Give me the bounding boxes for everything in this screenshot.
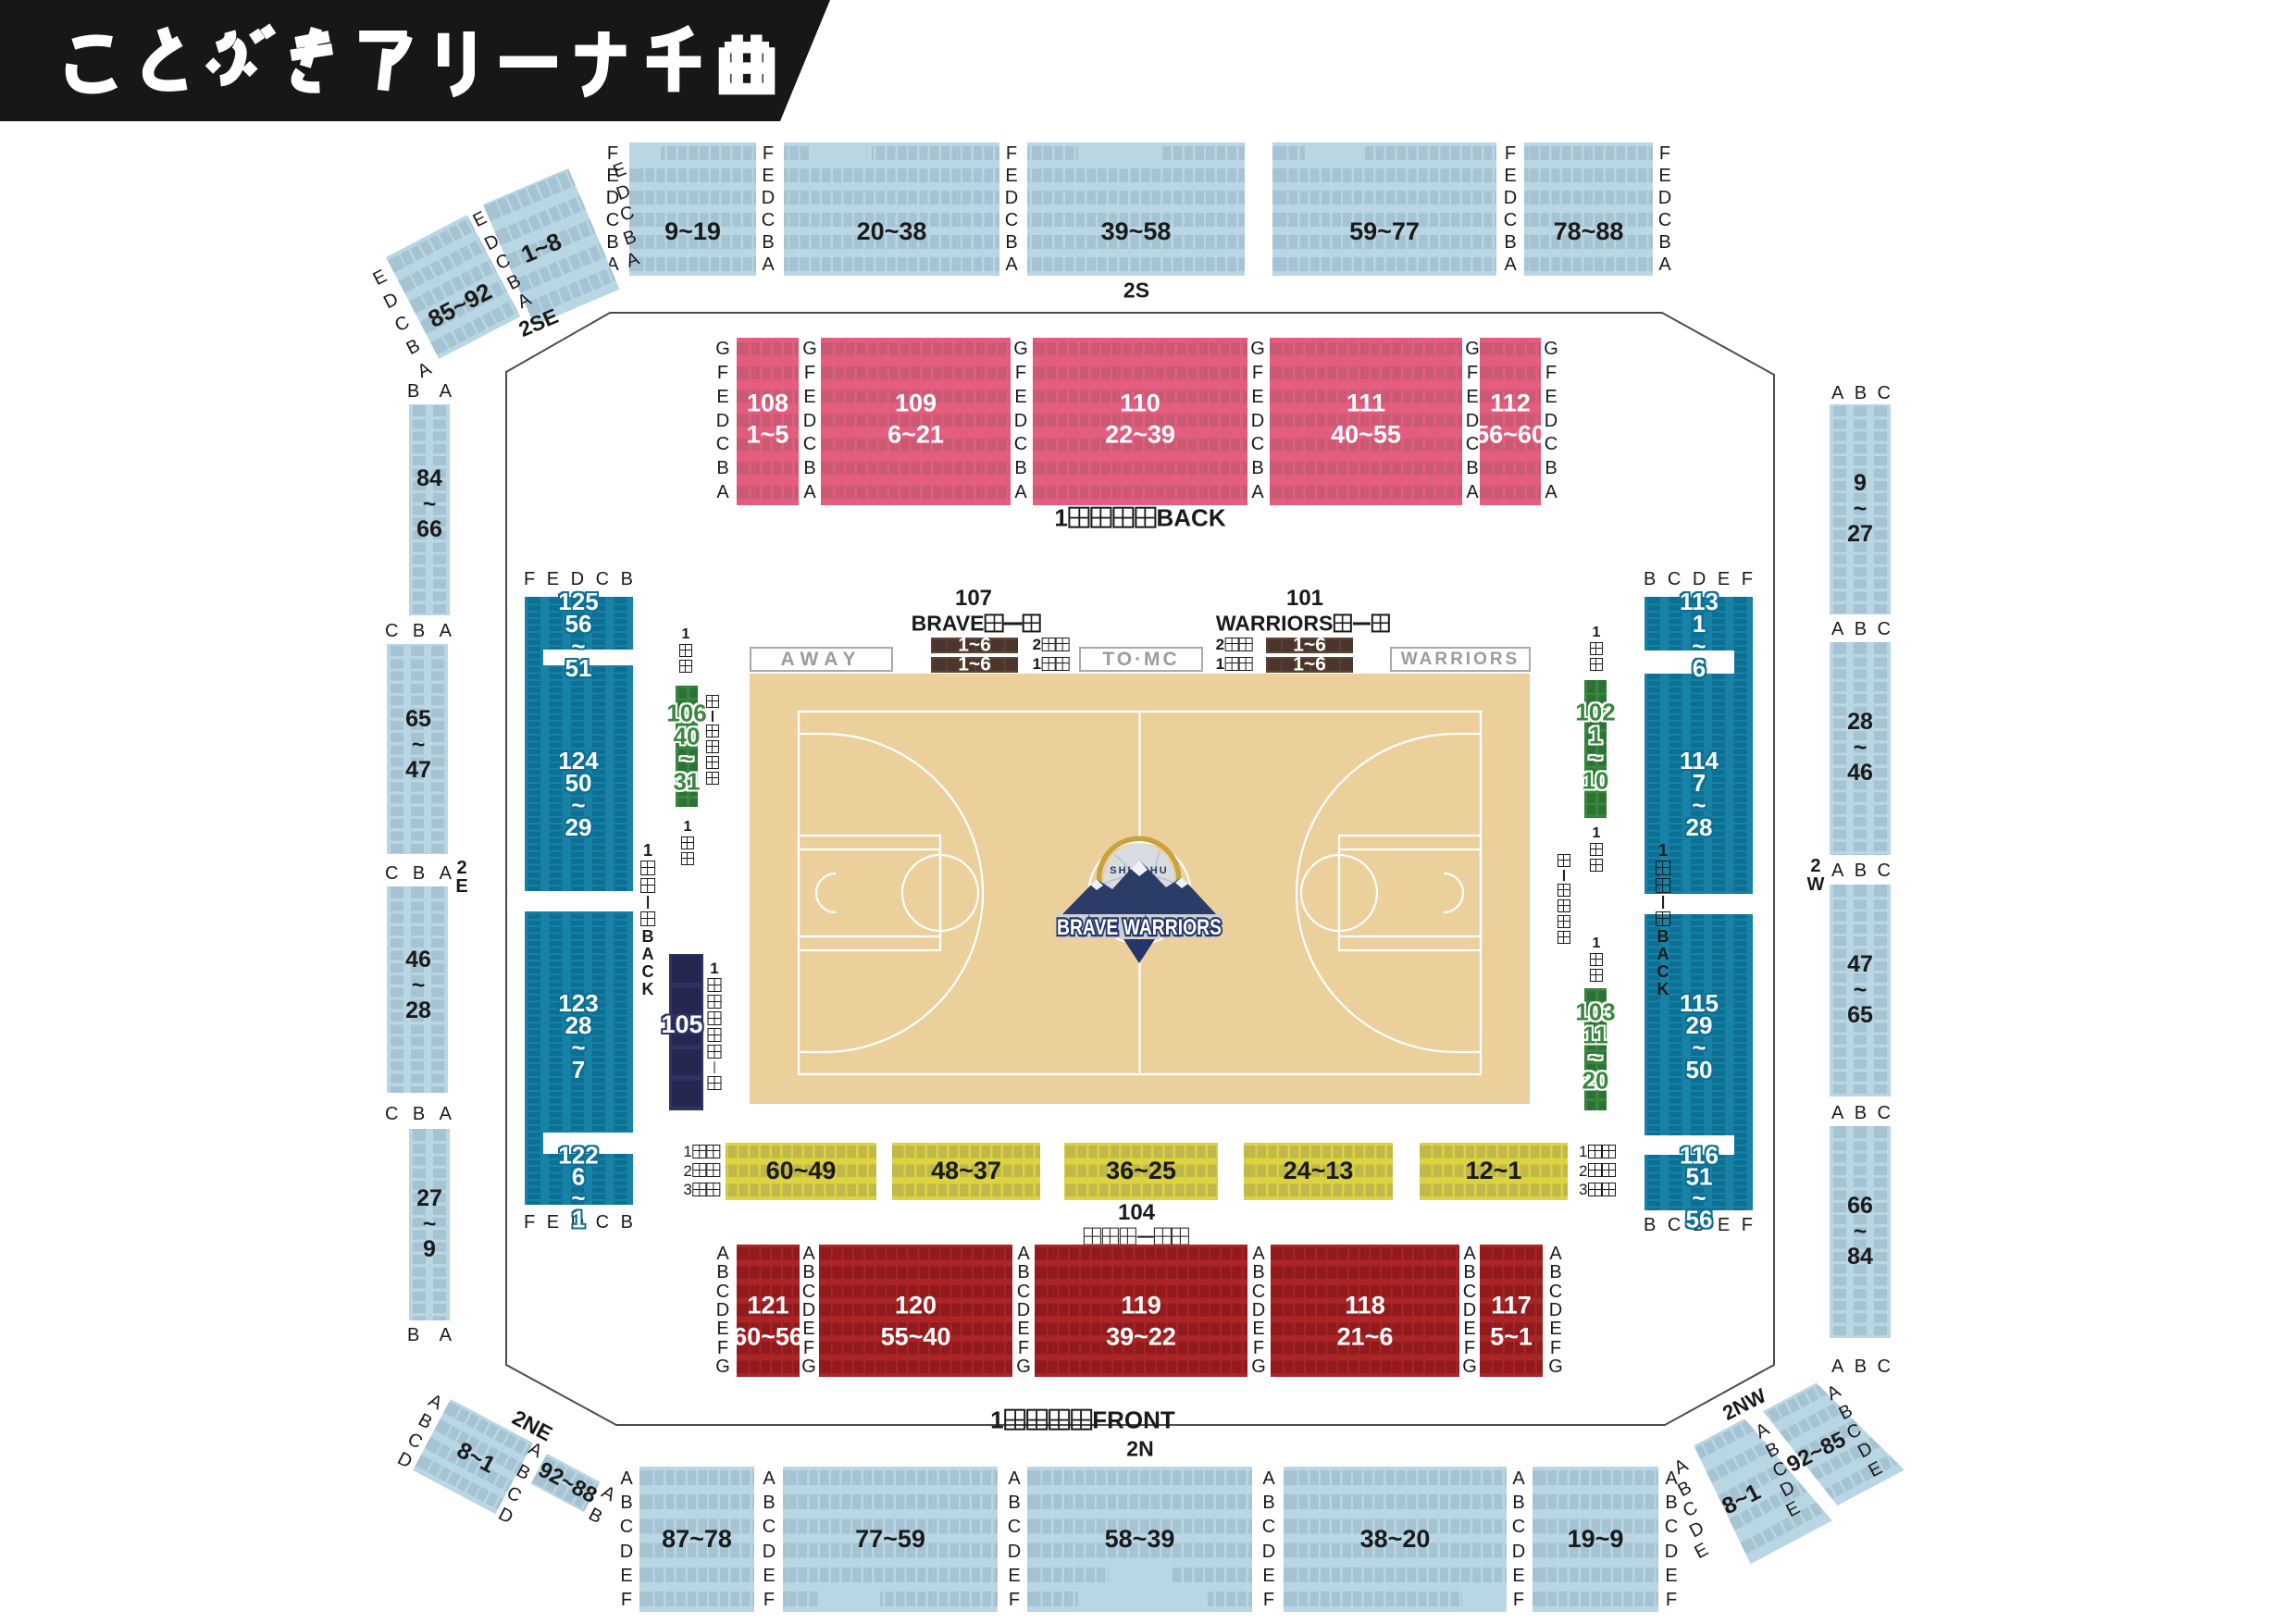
svg-text:BRAVE WARRIORS: BRAVE WARRIORS	[1057, 915, 1222, 940]
